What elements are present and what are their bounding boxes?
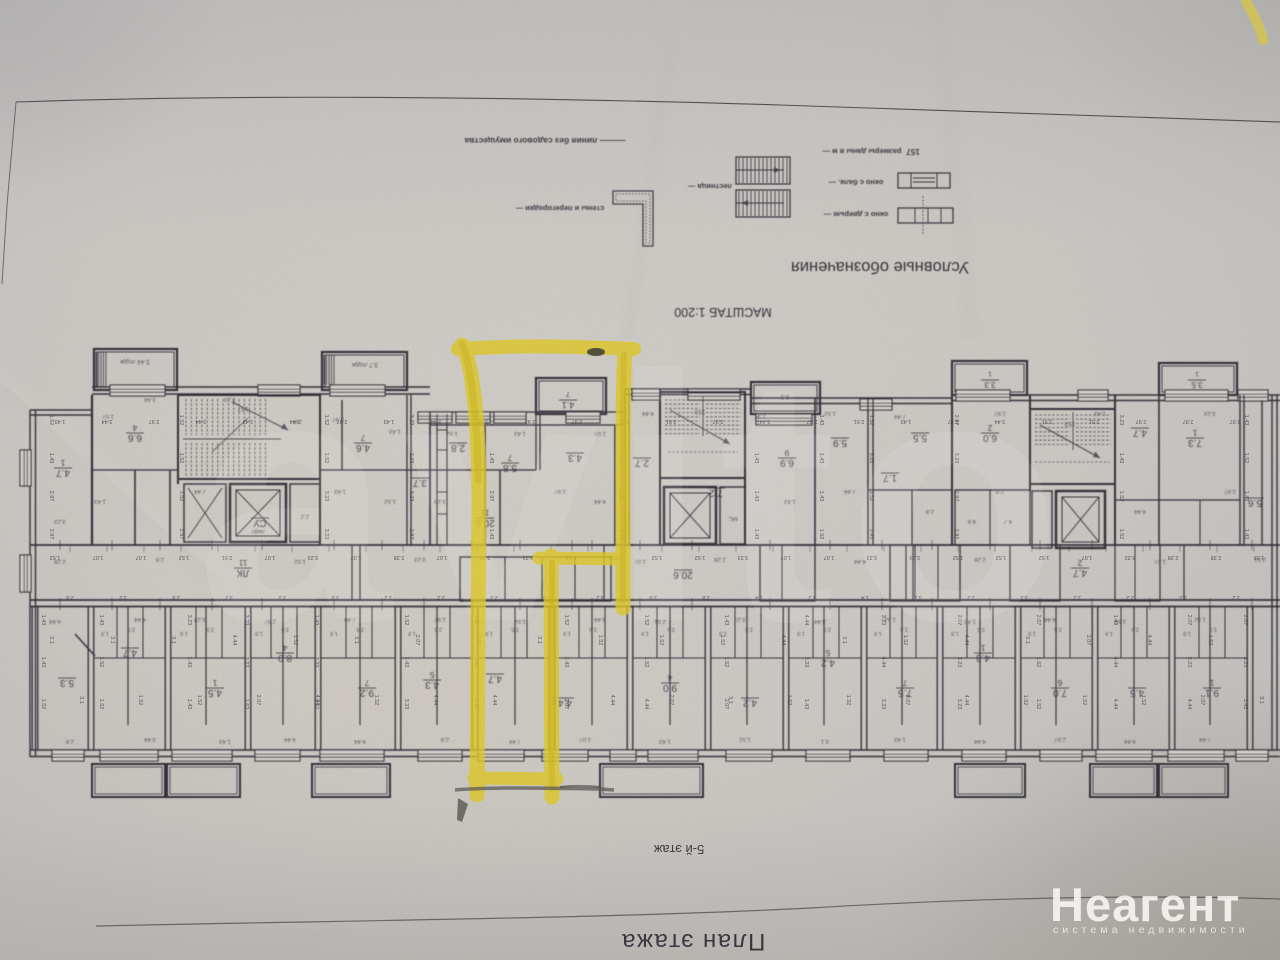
svg-text:2.97: 2.97 <box>178 529 184 540</box>
svg-text:4.44: 4.44 <box>1146 635 1152 646</box>
svg-text:2.97: 2.97 <box>1230 418 1241 424</box>
svg-text:1.52: 1.52 <box>739 736 751 742</box>
svg-text:2.07: 2.07 <box>563 699 569 710</box>
svg-text:2.28: 2.28 <box>1211 554 1222 560</box>
svg-text:1.52: 1.52 <box>1035 699 1041 710</box>
svg-text:1: 1 <box>60 458 65 468</box>
svg-text:1.52: 1.52 <box>178 491 184 502</box>
svg-text:4.44: 4.44 <box>1112 657 1118 668</box>
svg-text:1.52: 1.52 <box>40 699 46 710</box>
svg-text:1.52: 1.52 <box>50 554 61 560</box>
svg-text:4.44: 4.44 <box>354 738 366 744</box>
svg-text:2.97: 2.97 <box>149 418 160 424</box>
svg-text:3.23: 3.23 <box>1118 415 1124 426</box>
svg-text:7.44: 7.44 <box>509 738 521 744</box>
svg-text:1.52: 1.52 <box>313 699 319 710</box>
svg-text:2.28: 2.28 <box>1168 554 1179 560</box>
svg-text:1.43: 1.43 <box>1243 415 1249 426</box>
svg-text:4.44: 4.44 <box>963 695 969 706</box>
svg-text:3.23: 3.23 <box>1204 410 1216 416</box>
svg-text:2: 2 <box>1077 558 1082 568</box>
svg-text:3.1: 3.1 <box>109 636 115 644</box>
svg-text:1.9: 1.9 <box>180 630 188 636</box>
svg-text:1.9: 1.9 <box>1183 630 1191 636</box>
svg-text:2.07: 2.07 <box>1199 695 1205 706</box>
svg-text:4.44: 4.44 <box>49 618 61 624</box>
svg-text:1: 1 <box>1192 428 1197 438</box>
svg-text:3.1: 3.1 <box>48 636 54 644</box>
svg-text:2.8: 2.8 <box>172 594 180 600</box>
svg-text:2.07: 2.07 <box>255 695 261 706</box>
svg-text:1.52: 1.52 <box>1118 491 1124 502</box>
svg-text:3.23: 3.23 <box>956 699 962 710</box>
svg-text:1.43: 1.43 <box>1112 615 1118 626</box>
svg-text:2.8: 2.8 <box>66 594 74 600</box>
svg-text:1.43: 1.43 <box>186 657 192 668</box>
svg-text:1.52: 1.52 <box>1194 616 1206 622</box>
svg-text:1.43: 1.43 <box>803 699 809 710</box>
svg-text:4.7: 4.7 <box>123 647 137 658</box>
svg-text:1.43: 1.43 <box>894 736 906 742</box>
svg-text:2.07: 2.07 <box>904 695 910 706</box>
svg-text:4.44: 4.44 <box>1112 699 1118 710</box>
svg-text:1: 1 <box>1209 678 1214 688</box>
svg-text:4.44: 4.44 <box>643 699 649 710</box>
svg-text:1.43: 1.43 <box>40 615 46 626</box>
svg-text:2.5: 2.5 <box>1209 626 1217 632</box>
svg-text:1.52: 1.52 <box>178 415 184 426</box>
svg-text:2.2: 2.2 <box>1126 594 1134 600</box>
svg-text:4.44: 4.44 <box>1124 738 1136 744</box>
svg-text:1.43: 1.43 <box>55 418 66 424</box>
svg-text:157: 157 <box>906 147 920 156</box>
svg-text:4.44: 4.44 <box>1134 508 1146 514</box>
svg-text:окно с балк. —: окно с балк. — <box>828 178 883 187</box>
svg-text:1.52: 1.52 <box>179 554 190 560</box>
svg-text:1.52: 1.52 <box>1118 529 1124 540</box>
svg-text:лестница —: лестница — <box>687 182 732 191</box>
svg-text:1.52: 1.52 <box>1254 554 1265 560</box>
svg-text:1.52: 1.52 <box>243 699 249 710</box>
svg-text:1.43: 1.43 <box>40 657 46 668</box>
svg-text:1.43: 1.43 <box>1243 529 1249 540</box>
svg-text:1.52: 1.52 <box>373 695 379 706</box>
svg-text:1.43: 1.43 <box>1242 699 1248 710</box>
svg-text:4.44: 4.44 <box>491 695 497 706</box>
svg-text:3.44: 3.44 <box>144 736 156 742</box>
svg-text:1.52: 1.52 <box>786 695 792 706</box>
svg-text:1.52: 1.52 <box>1022 695 1028 706</box>
svg-text:3.1: 3.1 <box>820 738 829 744</box>
svg-text:2.97: 2.97 <box>48 491 54 502</box>
svg-text:1.07: 1.07 <box>1154 558 1166 564</box>
svg-text:1.43: 1.43 <box>1094 410 1106 416</box>
svg-text:система недвижимости: система недвижимости <box>1053 924 1249 936</box>
svg-text:3.1: 3.1 <box>170 636 176 644</box>
svg-text:окно с дверью —: окно с дверью — <box>823 210 888 219</box>
svg-text:2.07: 2.07 <box>1242 615 1248 626</box>
svg-text:4.44: 4.44 <box>1186 699 1192 710</box>
svg-text:2.07: 2.07 <box>723 699 729 710</box>
svg-text:4.44: 4.44 <box>432 695 438 706</box>
svg-text:2.8: 2.8 <box>440 736 449 742</box>
svg-text:3.2: 3.2 <box>119 594 127 600</box>
svg-text:1.52: 1.52 <box>1081 695 1087 706</box>
svg-text:1.52: 1.52 <box>98 657 104 668</box>
svg-text:2.8: 2.8 <box>155 556 164 562</box>
svg-text:1.43: 1.43 <box>659 738 671 744</box>
svg-text:1.52: 1.52 <box>196 695 202 706</box>
svg-text:1.9: 1.9 <box>101 630 109 636</box>
svg-text:2.97: 2.97 <box>1136 418 1147 424</box>
svg-text:avito: avito <box>197 304 1074 695</box>
svg-text:2.5: 2.5 <box>1131 626 1139 632</box>
svg-text:3.23: 3.23 <box>403 699 409 710</box>
svg-text:3.23: 3.23 <box>1125 554 1136 560</box>
svg-text:1.07: 1.07 <box>1082 554 1093 560</box>
svg-text:4.44: 4.44 <box>284 736 296 742</box>
svg-text:1.43: 1.43 <box>1118 453 1124 464</box>
svg-text:1.07: 1.07 <box>136 554 147 560</box>
svg-text:1.43: 1.43 <box>98 615 104 626</box>
svg-text:3.44: 3.44 <box>102 418 113 424</box>
svg-text:4: 4 <box>132 423 137 433</box>
svg-text:——— линия без садового имущес: ——— линия без садового имущества <box>464 136 625 146</box>
svg-text:1: 1 <box>1195 370 1199 377</box>
svg-text:3.5: 3.5 <box>1191 380 1203 389</box>
svg-text:4.44: 4.44 <box>134 616 146 622</box>
svg-text:2.07: 2.07 <box>1186 615 1192 626</box>
svg-text:1.52: 1.52 <box>137 695 143 706</box>
svg-text:3.23: 3.23 <box>1242 657 1248 668</box>
svg-text:2.07: 2.07 <box>1085 635 1091 646</box>
svg-text:3.23: 3.23 <box>186 615 192 626</box>
svg-text:2.97: 2.97 <box>1224 488 1236 494</box>
svg-text:3.44 лодж: 3.44 лодж <box>119 358 150 365</box>
svg-text:4.44: 4.44 <box>974 738 986 744</box>
svg-text:3.23: 3.23 <box>1186 657 1192 668</box>
svg-text:1.43: 1.43 <box>48 453 54 464</box>
svg-text:размеры даны в м —: размеры даны в м — <box>822 147 901 156</box>
svg-text:1.07: 1.07 <box>579 736 591 742</box>
svg-text:4.7: 4.7 <box>1133 427 1147 438</box>
svg-text:1.43: 1.43 <box>186 699 192 710</box>
svg-text:стены и перегородки —: стены и перегородки — <box>515 204 604 213</box>
svg-text:1.52: 1.52 <box>1243 453 1249 464</box>
svg-text:7.44: 7.44 <box>1199 736 1211 742</box>
svg-text:2.97: 2.97 <box>1183 418 1194 424</box>
svg-text:2.2: 2.2 <box>1073 594 1081 600</box>
svg-text:1.52: 1.52 <box>48 415 54 426</box>
svg-text:4.44: 4.44 <box>609 695 615 706</box>
svg-text:3.44: 3.44 <box>144 396 156 402</box>
svg-text:2.51: 2.51 <box>1089 418 1100 424</box>
svg-text:2.2: 2.2 <box>1232 594 1240 600</box>
svg-text:1.43: 1.43 <box>219 738 231 744</box>
svg-text:1.43: 1.43 <box>94 498 106 504</box>
svg-text:1.07: 1.07 <box>93 554 104 560</box>
svg-text:2.97: 2.97 <box>48 529 54 540</box>
svg-text:3.23: 3.23 <box>880 699 886 710</box>
svg-text:Условные обозначения: Условные обозначения <box>791 258 969 276</box>
svg-text:3.23: 3.23 <box>54 518 66 524</box>
svg-text:1.52: 1.52 <box>98 699 104 710</box>
svg-text:2.5: 2.5 <box>127 626 135 632</box>
svg-text:4.2: 4.2 <box>743 697 757 708</box>
svg-text:План этажа: План этажа <box>621 928 766 955</box>
svg-text:1.52: 1.52 <box>1207 635 1213 646</box>
svg-text:1.9: 1.9 <box>1105 630 1113 636</box>
svg-text:2.8: 2.8 <box>65 738 74 744</box>
svg-text:3.1: 3.1 <box>78 696 84 704</box>
svg-text:2.97: 2.97 <box>1054 736 1066 742</box>
svg-text:5-й этаж: 5-й этаж <box>653 842 704 857</box>
svg-text:1.43: 1.43 <box>1243 491 1249 502</box>
svg-text:1.52: 1.52 <box>845 695 851 706</box>
svg-text:3.1: 3.1 <box>1258 696 1264 704</box>
svg-text:1.52: 1.52 <box>178 453 184 464</box>
svg-text:3.2: 3.2 <box>1179 594 1187 600</box>
svg-text:1.52: 1.52 <box>1140 695 1146 706</box>
svg-text:2.07: 2.07 <box>668 695 674 706</box>
svg-text:5.3: 5.3 <box>60 677 74 688</box>
